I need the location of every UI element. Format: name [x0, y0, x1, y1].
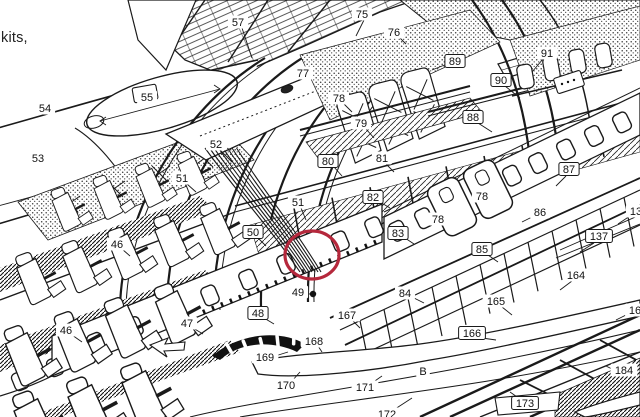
part-label: 169: [252, 351, 279, 364]
svg-text:52: 52: [210, 139, 222, 151]
part-label: 90: [491, 74, 511, 87]
svg-text:51: 51: [176, 173, 188, 185]
part-label: 173: [512, 397, 539, 410]
svg-text:53: 53: [32, 153, 44, 165]
part-label: 52: [206, 138, 226, 151]
part-label: 51: [288, 196, 308, 209]
part-label: 46: [56, 324, 76, 337]
part-49-dot: [310, 291, 316, 297]
part-label: 137: [586, 230, 613, 243]
svg-text:47: 47: [181, 318, 193, 330]
part-label: 89: [445, 55, 465, 68]
part-label: 80: [318, 155, 338, 168]
part-label: 172: [374, 408, 401, 417]
part-label: 165: [483, 295, 510, 308]
svg-text:89: 89: [449, 56, 461, 68]
svg-text:167: 167: [338, 310, 356, 322]
svg-text:173: 173: [516, 398, 534, 410]
svg-text:57: 57: [232, 17, 244, 29]
part-label: 184: [611, 364, 638, 377]
svg-text:86: 86: [534, 207, 546, 219]
svg-text:168: 168: [305, 336, 323, 348]
part-label: 88: [463, 111, 483, 124]
svg-text:83: 83: [392, 228, 404, 240]
svg-text:50: 50: [247, 227, 259, 239]
svg-text:184: 184: [615, 365, 633, 377]
svg-text:85: 85: [476, 244, 488, 256]
svg-text:84: 84: [399, 288, 411, 300]
part-label: 53: [28, 152, 48, 165]
svg-text:79: 79: [355, 118, 367, 130]
svg-text:13: 13: [630, 206, 640, 218]
svg-text:78: 78: [432, 214, 444, 226]
svg-text:137: 137: [590, 231, 608, 243]
part-label: 51: [172, 172, 192, 185]
part-label: 48: [248, 307, 268, 320]
svg-text:48: 48: [252, 308, 264, 320]
part-label: 78: [329, 92, 349, 105]
svg-text:B: B: [419, 366, 426, 378]
svg-text:170: 170: [277, 380, 295, 392]
part-label: 83: [388, 227, 408, 240]
part-label: 86: [530, 206, 550, 219]
svg-text:90: 90: [495, 75, 507, 87]
part-label: 49: [288, 286, 308, 299]
part-label: 79: [351, 117, 371, 130]
part-label: 166: [459, 327, 486, 340]
svg-text:91: 91: [541, 48, 553, 60]
part-label: 75: [352, 8, 372, 21]
svg-text:51: 51: [292, 197, 304, 209]
part-label: 82: [363, 191, 383, 204]
part-label: 16: [625, 304, 640, 317]
svg-text:81: 81: [376, 153, 388, 165]
part-label: 168: [301, 335, 328, 348]
svg-text:88: 88: [467, 112, 479, 124]
part-label: 170: [273, 379, 300, 392]
part-label: 76: [384, 26, 404, 39]
svg-text:80: 80: [322, 156, 334, 168]
part-label: 57: [228, 16, 248, 29]
part-label: 78: [472, 190, 492, 203]
part-label: 13: [626, 205, 640, 218]
part-label: 47: [177, 317, 197, 330]
svg-text:77: 77: [297, 68, 309, 80]
svg-text:87: 87: [563, 164, 575, 176]
svg-text:49: 49: [292, 287, 304, 299]
part-label: 55: [137, 91, 157, 104]
part-label: 50: [243, 226, 263, 239]
part-label: 84: [395, 287, 415, 300]
svg-text:55: 55: [141, 92, 153, 104]
cutaway-line-art: 5453555775767752515150464647484989919088…: [0, 0, 640, 417]
part-label: 85: [472, 243, 492, 256]
svg-text:75: 75: [356, 9, 368, 21]
svg-text:165: 165: [487, 296, 505, 308]
svg-text:172: 172: [378, 409, 396, 417]
svg-text:46: 46: [111, 239, 123, 251]
svg-text:78: 78: [333, 93, 345, 105]
svg-text:169: 169: [256, 352, 274, 364]
part-label: 46: [107, 238, 127, 251]
part-label: 91: [537, 47, 557, 60]
svg-text:46: 46: [60, 325, 72, 337]
svg-text:16: 16: [629, 305, 640, 317]
aircraft-cutaway-figure: 5453555775767752515150464647484989919088…: [0, 0, 640, 417]
part-label: 77: [293, 67, 313, 80]
part-label: 87: [559, 163, 579, 176]
svg-text:82: 82: [367, 192, 379, 204]
part-label: 164: [563, 269, 590, 282]
part-label: B: [416, 365, 430, 378]
part-label: 167: [334, 309, 361, 322]
svg-text:78: 78: [476, 191, 488, 203]
svg-text:54: 54: [39, 103, 51, 115]
svg-text:76: 76: [388, 27, 400, 39]
svg-text:164: 164: [567, 270, 585, 282]
part-label: 81: [372, 152, 392, 165]
svg-text:171: 171: [356, 382, 374, 394]
part-label: 171: [352, 381, 379, 394]
part-label: 54: [35, 102, 55, 115]
part-label: 78: [428, 213, 448, 226]
caption-text-fragment: kits,: [1, 30, 28, 46]
svg-text:166: 166: [463, 328, 481, 340]
